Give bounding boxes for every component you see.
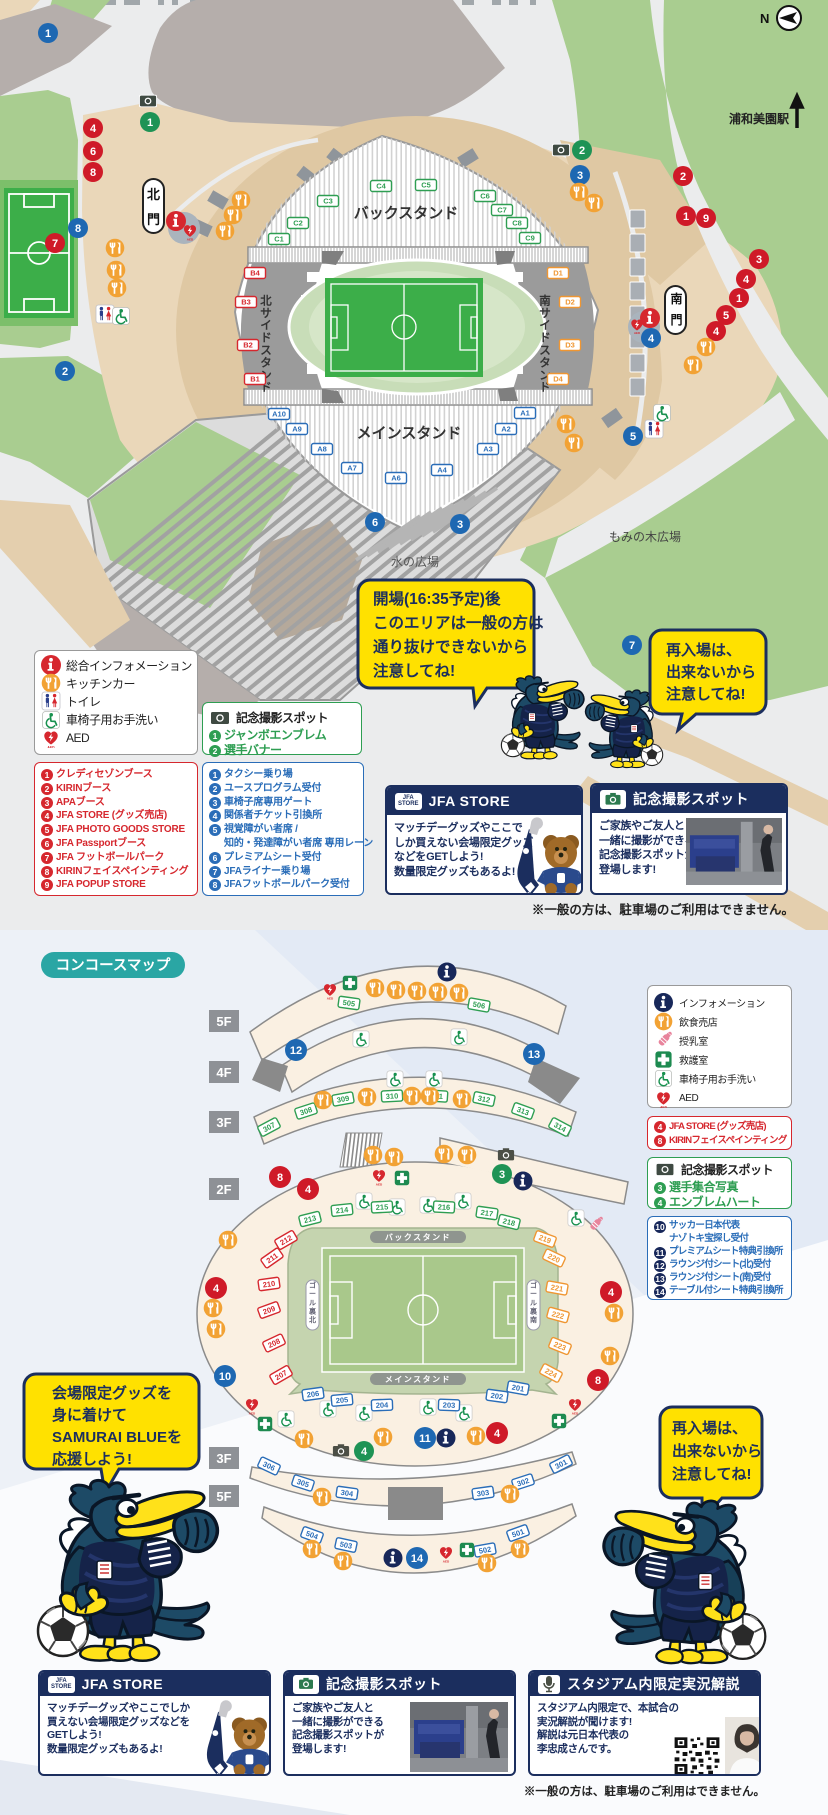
svg-text:303: 303 bbox=[476, 1488, 490, 1499]
svg-text:3: 3 bbox=[577, 170, 583, 182]
svg-text:もみの木広場: もみの木広場 bbox=[609, 530, 681, 544]
svg-text:4: 4 bbox=[713, 326, 720, 338]
svg-text:B1: B1 bbox=[250, 375, 260, 384]
svg-text:8: 8 bbox=[277, 1172, 283, 1184]
svg-text:D1: D1 bbox=[553, 269, 563, 278]
svg-text:2F: 2F bbox=[216, 1182, 231, 1197]
svg-text:12: 12 bbox=[290, 1045, 302, 1057]
svg-text:C9: C9 bbox=[525, 234, 535, 243]
svg-text:3: 3 bbox=[457, 519, 463, 531]
svg-text:7: 7 bbox=[629, 640, 635, 652]
svg-text:4: 4 bbox=[648, 333, 655, 345]
svg-text:9: 9 bbox=[703, 213, 709, 225]
svg-text:メインスタンド: メインスタンド bbox=[385, 1374, 451, 1384]
svg-text:202: 202 bbox=[490, 1391, 504, 1402]
svg-text:開場(16:35予定)後: 開場(16:35予定)後 bbox=[373, 589, 501, 608]
svg-text:C7: C7 bbox=[497, 206, 507, 215]
svg-text:C6: C6 bbox=[480, 192, 490, 201]
svg-text:ゴール裏南: ゴール裏南 bbox=[529, 1281, 538, 1324]
svg-text:4F: 4F bbox=[216, 1065, 231, 1080]
svg-text:門: 門 bbox=[670, 313, 682, 327]
svg-text:B3: B3 bbox=[241, 298, 251, 307]
svg-text:8: 8 bbox=[90, 167, 96, 179]
svg-text:水の広場: 水の広場 bbox=[391, 555, 439, 569]
svg-text:310: 310 bbox=[386, 1091, 399, 1101]
svg-text:5: 5 bbox=[723, 310, 729, 322]
svg-text:このエリアは一般の方は: このエリアは一般の方は bbox=[373, 613, 544, 632]
svg-text:1: 1 bbox=[736, 293, 742, 305]
svg-text:505: 505 bbox=[342, 998, 356, 1009]
svg-text:2: 2 bbox=[579, 145, 585, 157]
svg-text:A1: A1 bbox=[520, 409, 530, 418]
svg-text:C4: C4 bbox=[376, 182, 386, 191]
svg-text:C8: C8 bbox=[512, 219, 522, 228]
svg-text:304: 304 bbox=[340, 1488, 354, 1499]
svg-text:4: 4 bbox=[90, 123, 97, 135]
svg-text:217: 217 bbox=[480, 1208, 494, 1219]
svg-text:A8: A8 bbox=[317, 445, 327, 454]
svg-text:C2: C2 bbox=[293, 219, 303, 228]
svg-text:A9: A9 bbox=[292, 425, 302, 434]
svg-text:C5: C5 bbox=[421, 181, 431, 190]
svg-text:北: 北 bbox=[147, 187, 160, 202]
svg-text:14: 14 bbox=[411, 1553, 424, 1565]
svg-text:8: 8 bbox=[595, 1375, 601, 1387]
svg-text:205: 205 bbox=[335, 1395, 348, 1405]
svg-text:4: 4 bbox=[494, 1428, 501, 1440]
svg-text:通り抜けできないから: 通り抜けできないから bbox=[373, 637, 528, 656]
svg-text:A2: A2 bbox=[501, 425, 511, 434]
svg-text:南: 南 bbox=[670, 291, 682, 306]
svg-text:B4: B4 bbox=[250, 269, 260, 278]
svg-text:6: 6 bbox=[90, 146, 96, 158]
svg-text:204: 204 bbox=[376, 1400, 390, 1409]
svg-text:バックスタンド: バックスタンド bbox=[385, 1232, 451, 1242]
svg-text:215: 215 bbox=[376, 1202, 389, 1212]
svg-text:216: 216 bbox=[438, 1202, 451, 1212]
svg-text:13: 13 bbox=[528, 1049, 540, 1061]
svg-text:浦和美園駅: 浦和美園駅 bbox=[729, 111, 790, 126]
svg-text:214: 214 bbox=[335, 1205, 349, 1215]
svg-text:5F: 5F bbox=[216, 1489, 231, 1504]
svg-text:2: 2 bbox=[62, 366, 68, 378]
svg-text:10: 10 bbox=[219, 1371, 231, 1383]
svg-text:N: N bbox=[760, 11, 769, 26]
svg-text:5: 5 bbox=[630, 431, 636, 443]
svg-text:D2: D2 bbox=[565, 298, 575, 307]
svg-text:2: 2 bbox=[680, 171, 686, 183]
svg-text:再入場は、: 再入場は、 bbox=[672, 1420, 747, 1437]
svg-text:A7: A7 bbox=[347, 464, 357, 473]
svg-text:4: 4 bbox=[305, 1184, 312, 1196]
svg-text:3: 3 bbox=[499, 1169, 505, 1181]
svg-text:注意してね!: 注意してね! bbox=[373, 661, 455, 680]
svg-text:D3: D3 bbox=[565, 341, 575, 350]
svg-text:バックスタンド: バックスタンド bbox=[354, 205, 459, 222]
svg-text:4: 4 bbox=[361, 1446, 368, 1458]
svg-text:門: 門 bbox=[147, 212, 160, 227]
svg-text:3: 3 bbox=[756, 254, 762, 266]
svg-text:SAMURAI BLUEを: SAMURAI BLUEを bbox=[52, 1429, 182, 1446]
svg-text:6: 6 bbox=[372, 517, 378, 529]
svg-text:1: 1 bbox=[45, 28, 51, 40]
svg-text:注意してね!: 注意してね! bbox=[672, 1465, 752, 1483]
svg-text:ゴール裏北: ゴール裏北 bbox=[308, 1281, 317, 1324]
svg-text:メインスタンド: メインスタンド bbox=[357, 425, 462, 442]
svg-text:210: 210 bbox=[262, 1279, 276, 1290]
svg-text:A3: A3 bbox=[483, 445, 493, 454]
svg-text:コンコースマップ: コンコースマップ bbox=[56, 957, 171, 974]
svg-text:会場限定グッズを: 会場限定グッズを bbox=[52, 1384, 172, 1402]
svg-text:206: 206 bbox=[306, 1389, 320, 1400]
svg-text:4: 4 bbox=[213, 1283, 220, 1295]
svg-text:3F: 3F bbox=[216, 1451, 231, 1466]
svg-text:203: 203 bbox=[443, 1400, 456, 1409]
svg-text:D4: D4 bbox=[553, 375, 563, 384]
svg-text:4: 4 bbox=[608, 1287, 615, 1299]
svg-text:5F: 5F bbox=[216, 1014, 231, 1029]
svg-text:応援しよう!: 応援しよう! bbox=[52, 1450, 132, 1468]
svg-text:C3: C3 bbox=[323, 197, 333, 206]
svg-text:再入場は、: 再入場は、 bbox=[666, 642, 741, 659]
svg-text:身に着けて: 身に着けて bbox=[52, 1406, 127, 1424]
svg-text:8: 8 bbox=[75, 223, 81, 235]
svg-text:1: 1 bbox=[683, 211, 689, 223]
svg-text:4: 4 bbox=[743, 274, 750, 286]
svg-text:A4: A4 bbox=[437, 466, 447, 475]
svg-text:7: 7 bbox=[52, 238, 58, 250]
svg-text:注意してね!: 注意してね! bbox=[666, 685, 746, 703]
svg-text:11: 11 bbox=[419, 1433, 431, 1445]
svg-text:A10: A10 bbox=[272, 410, 286, 419]
svg-text:出来ないから: 出来ないから bbox=[672, 1442, 762, 1460]
svg-text:3F: 3F bbox=[216, 1115, 231, 1130]
svg-text:B2: B2 bbox=[243, 341, 253, 350]
svg-text:A6: A6 bbox=[391, 474, 401, 483]
svg-text:出来ないから: 出来ないから bbox=[666, 663, 756, 681]
svg-text:C1: C1 bbox=[274, 235, 284, 244]
svg-text:1: 1 bbox=[147, 117, 153, 129]
